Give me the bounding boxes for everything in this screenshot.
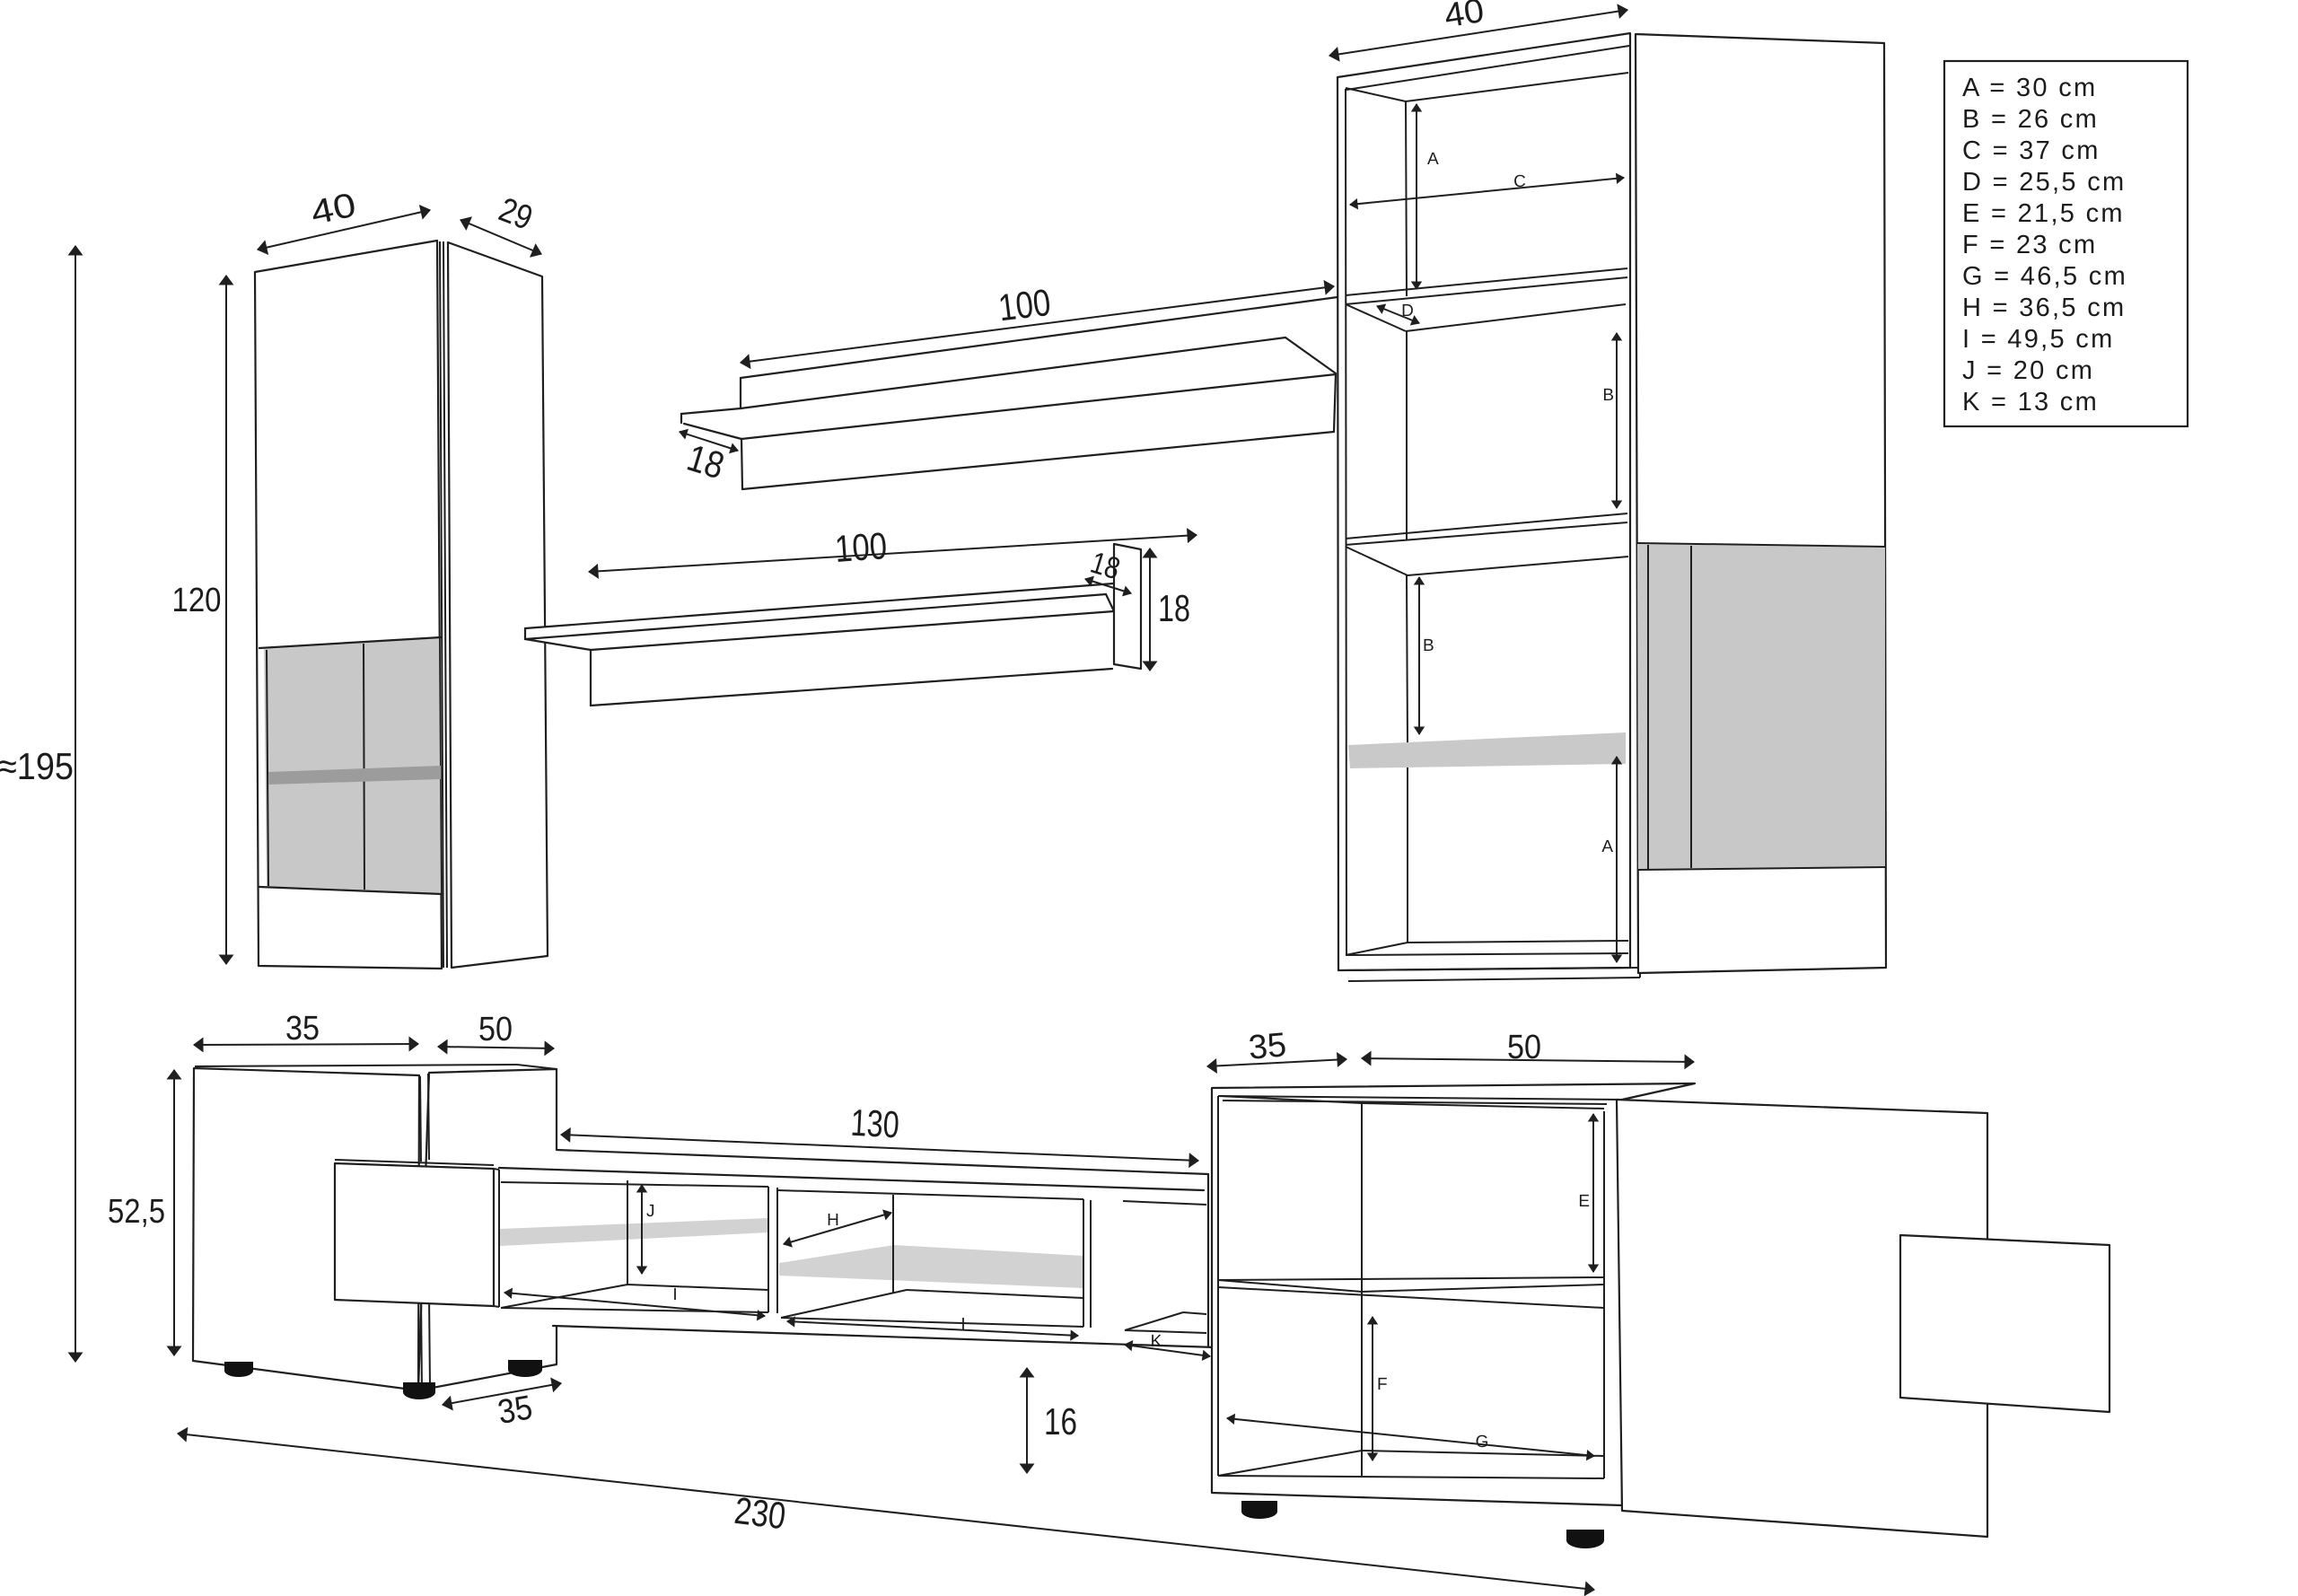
svg-text:E = 21,5 cm: E = 21,5 cm [1962, 199, 2125, 228]
svg-text:I: I [672, 1285, 677, 1304]
svg-text:35: 35 [285, 1010, 320, 1048]
svg-text:B = 26 cm: B = 26 cm [1962, 105, 2099, 134]
svg-text:≈195: ≈195 [0, 745, 74, 787]
svg-text:100: 100 [996, 281, 1053, 329]
svg-text:J: J [646, 1202, 655, 1221]
svg-text:A = 30 cm: A = 30 cm [1962, 74, 2097, 102]
svg-text:50: 50 [1507, 1029, 1541, 1066]
svg-text:A: A [1427, 150, 1439, 169]
svg-text:230: 230 [732, 1489, 788, 1538]
svg-text:18: 18 [1158, 587, 1190, 629]
svg-text:I: I [960, 1315, 965, 1334]
svg-text:16: 16 [1044, 1400, 1077, 1443]
svg-text:52,5: 52,5 [108, 1193, 165, 1231]
svg-text:C = 37 cm: C = 37 cm [1962, 136, 2101, 165]
svg-text:35: 35 [1247, 1026, 1288, 1067]
svg-text:J = 20 cm: J = 20 cm [1962, 356, 2094, 385]
svg-text:120: 120 [172, 582, 222, 619]
svg-text:H = 36,5 cm: H = 36,5 cm [1962, 294, 2126, 322]
svg-text:G = 46,5 cm: G = 46,5 cm [1962, 262, 2127, 291]
svg-text:D: D [1401, 302, 1414, 320]
svg-text:130: 130 [850, 1101, 900, 1146]
svg-text:B: B [1423, 636, 1434, 655]
svg-text:G: G [1476, 1433, 1489, 1451]
svg-text:35: 35 [496, 1389, 536, 1432]
svg-text:50: 50 [478, 1011, 513, 1048]
svg-text:E: E [1578, 1192, 1590, 1211]
svg-text:F: F [1377, 1375, 1388, 1394]
svg-text:K: K [1151, 1332, 1162, 1351]
svg-text:H: H [827, 1211, 839, 1230]
svg-text:I = 49,5 cm: I = 49,5 cm [1962, 325, 2115, 354]
svg-text:F = 23 cm: F = 23 cm [1962, 231, 2097, 259]
svg-text:C: C [1513, 172, 1526, 191]
svg-text:40: 40 [1442, 0, 1487, 35]
svg-text:100: 100 [833, 524, 888, 570]
svg-text:A: A [1601, 837, 1613, 856]
svg-text:B: B [1602, 386, 1614, 405]
svg-text:D = 25,5 cm: D = 25,5 cm [1962, 168, 2126, 197]
svg-text:K = 13 cm: K = 13 cm [1962, 388, 2099, 417]
